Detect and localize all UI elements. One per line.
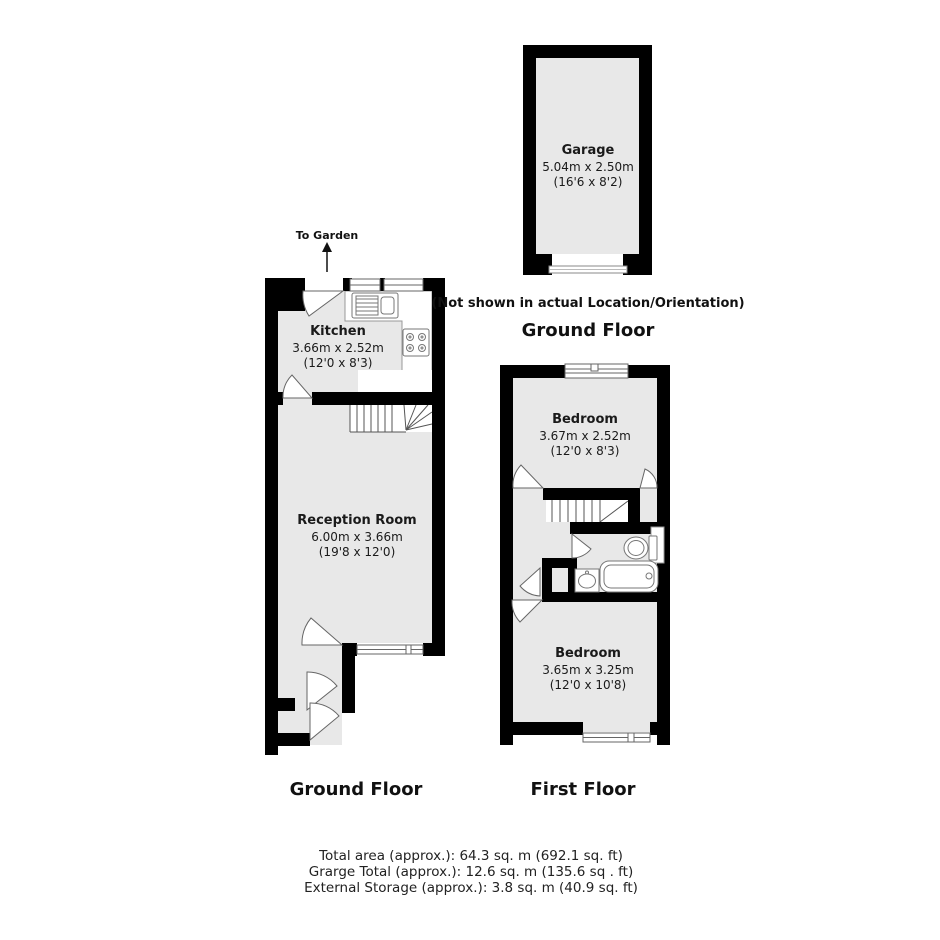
to-garden-label: To Garden xyxy=(296,229,358,242)
kitchen-metric: 3.66m x 2.52m xyxy=(292,341,384,357)
ff-wall-landing-stub xyxy=(542,558,572,568)
bedroom-front-window-mullion xyxy=(591,364,598,371)
floorplan-page: To Garden Garage 5.04m x 2.50m (16'6 x 8… xyxy=(0,0,940,940)
stair-well xyxy=(350,405,432,432)
wall-porch-bottom xyxy=(265,733,310,746)
staircase-first xyxy=(546,500,628,522)
bedroom-back-window-mullion xyxy=(628,733,634,742)
garage-wall-left xyxy=(523,45,536,275)
wall-kitchen-divider xyxy=(312,392,445,405)
garage-wall-bottom-left xyxy=(523,254,552,275)
kitchen-name: Kitchen xyxy=(292,324,384,341)
footer-external-storage: External Storage (approx.): 3.8 sq. m (4… xyxy=(304,880,638,896)
wall-top-a xyxy=(265,278,305,291)
reception-window-mullion xyxy=(406,645,411,654)
garage-floor-label: Ground Floor xyxy=(522,320,655,341)
floorplan-drawing xyxy=(0,0,940,940)
bedroom-front-label: Bedroom 3.67m x 2.52m (12'0 x 8'3) xyxy=(539,412,631,460)
bedroom-back-name: Bedroom xyxy=(542,646,634,663)
garage-note: (Not shown in actual Location/Orientatio… xyxy=(431,296,744,311)
kitchen-bulkhead xyxy=(358,370,432,392)
reception-name: Reception Room xyxy=(297,513,416,530)
bedroom-back-label: Bedroom 3.65m x 3.25m (12'0 x 10'8) xyxy=(542,646,634,694)
garage-room-imperial: (16'6 x 8'2) xyxy=(542,175,634,191)
first-floor-label: First Floor xyxy=(530,779,635,800)
toilet-icon xyxy=(624,536,657,560)
ff-wall-bath-bottom xyxy=(542,592,670,602)
hob-icon xyxy=(403,329,429,356)
garage-room-name: Garage xyxy=(542,143,634,160)
bedroom-front-name: Bedroom xyxy=(539,412,631,429)
stair-well-first xyxy=(546,500,628,522)
wall-hall-right xyxy=(342,643,355,713)
footer-total-area: Total area (approx.): 64.3 sq. m (692.1 … xyxy=(319,848,623,864)
kitchen-label: Kitchen 3.66m x 2.52m (12'0 x 8'3) xyxy=(292,324,384,372)
garage-room-metric: 5.04m x 2.50m xyxy=(542,160,634,176)
garage-label: Garage 5.04m x 2.50m (16'6 x 8'2) xyxy=(542,143,634,191)
ff-wall-left xyxy=(500,365,513,745)
wall-divider-stub xyxy=(265,392,283,405)
basin-icon xyxy=(575,569,599,592)
ff-wall-top-a xyxy=(500,365,565,378)
ff-wall-bottom-a xyxy=(500,722,583,735)
ff-wall-bottom-b xyxy=(650,722,670,735)
wall-bottom-b xyxy=(423,643,445,656)
ff-wall-top-b xyxy=(628,365,670,378)
footer-garage-total: Grarge Total (approx.): 12.6 sq. m (135.… xyxy=(309,864,633,880)
ff-wall-bedroom-divider xyxy=(543,488,628,500)
bathtub-icon xyxy=(600,561,658,592)
ground-floor-label: Ground Floor xyxy=(290,779,423,800)
ground-floor-plan xyxy=(265,242,445,755)
bedroom-back-metric: 3.65m x 3.25m xyxy=(542,663,634,679)
garage-wall-top xyxy=(523,45,652,58)
bedroom-front-metric: 3.67m x 2.52m xyxy=(539,429,631,445)
reception-metric: 6.00m x 3.66m xyxy=(297,530,416,546)
bedroom-back-imperial: (12'0 x 10'8) xyxy=(542,678,634,694)
sink-icon xyxy=(352,293,398,318)
reception-label: Reception Room 6.00m x 3.66m (19'8 x 12'… xyxy=(297,513,416,561)
garden-arrow-icon xyxy=(322,242,332,272)
kitchen-imperial: (12'0 x 8'3) xyxy=(292,356,384,372)
reception-imperial: (19'8 x 12'0) xyxy=(297,545,416,561)
wall-left xyxy=(265,278,278,755)
staircase-ground xyxy=(350,405,432,432)
wall-entry-block xyxy=(278,291,305,311)
wall-right xyxy=(432,278,445,655)
bedroom-front-imperial: (12'0 x 8'3) xyxy=(539,444,631,460)
wall-porch-stub xyxy=(265,698,295,711)
garage-wall-right xyxy=(639,45,652,275)
